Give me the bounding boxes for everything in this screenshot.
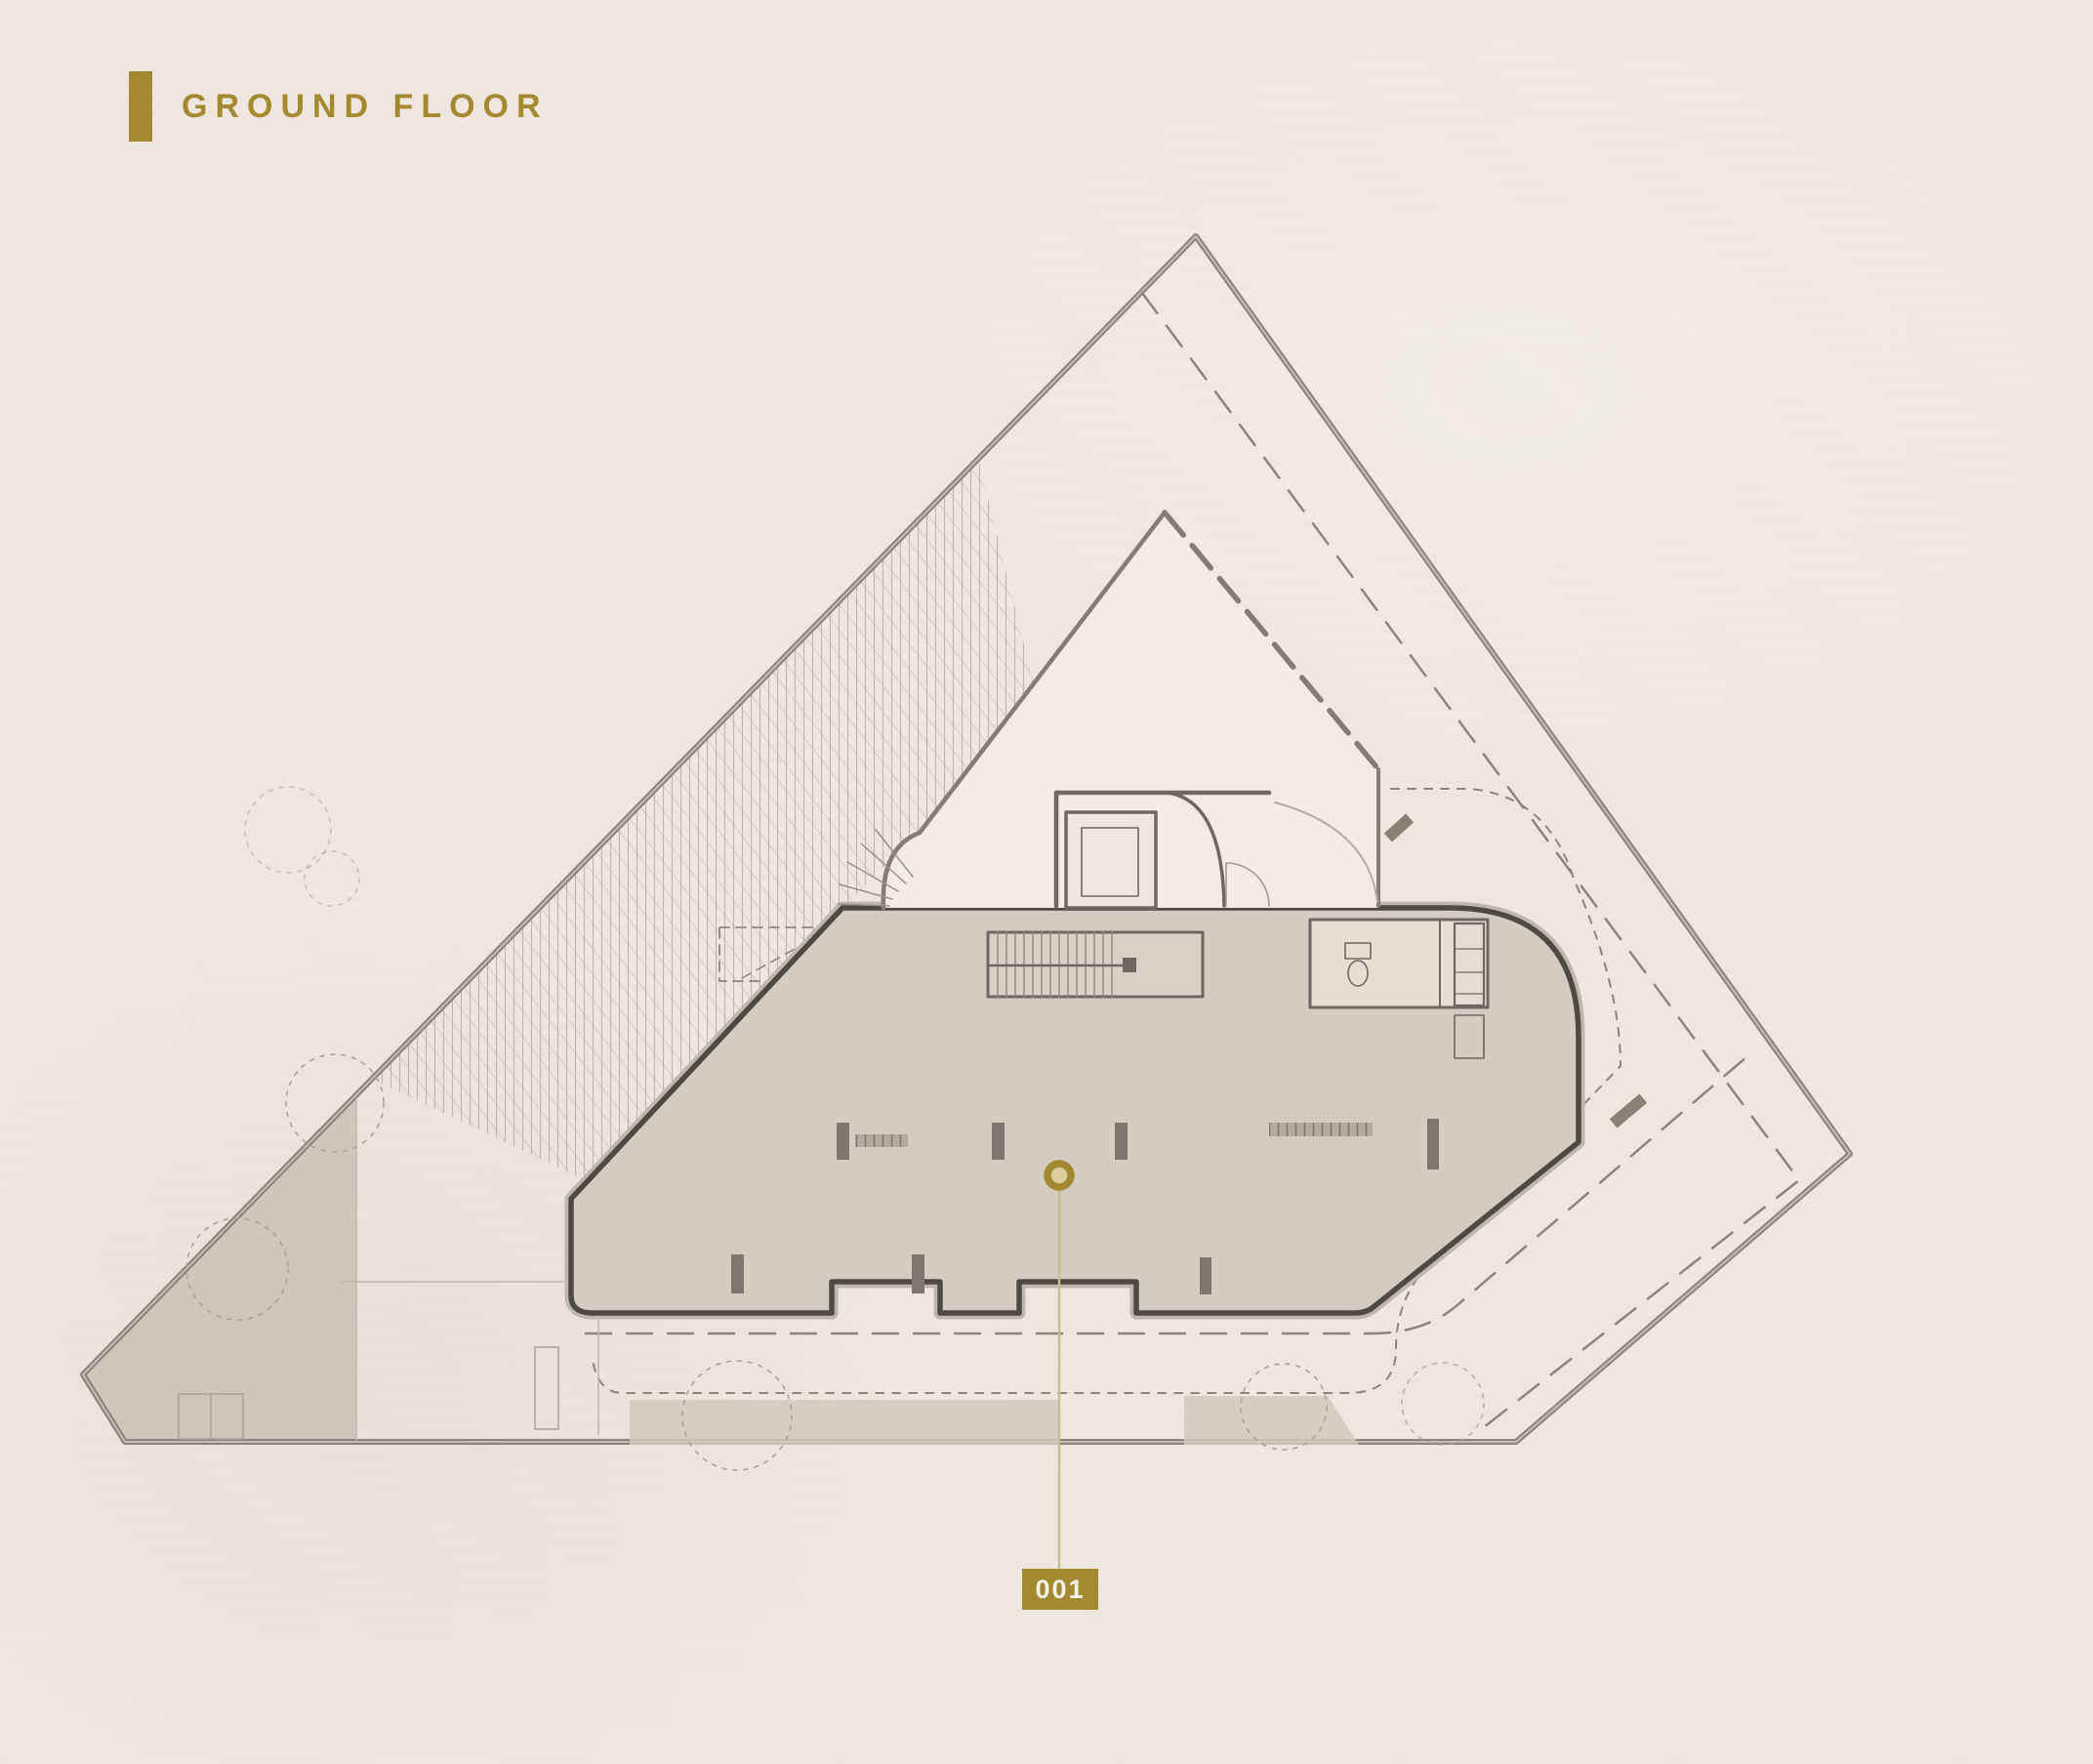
column	[912, 1254, 924, 1293]
column	[1427, 1119, 1439, 1169]
tree-canopy	[1402, 1363, 1484, 1445]
elevator	[1066, 812, 1156, 908]
column	[731, 1254, 744, 1293]
paving-strip	[630, 1400, 1059, 1445]
page: GROUND FLOOR	[0, 0, 2093, 1764]
tree-canopy	[305, 851, 359, 906]
column	[1200, 1257, 1211, 1294]
page-title: GROUND FLOOR	[182, 71, 549, 142]
title-accent-bar	[129, 71, 152, 142]
wall-stub-ticked	[1269, 1123, 1373, 1136]
pillar-stub	[1384, 814, 1414, 842]
column	[992, 1123, 1005, 1160]
garden-area	[83, 1069, 382, 1442]
floor-plan-drawing	[0, 0, 2093, 1764]
column	[837, 1123, 849, 1160]
column	[1115, 1123, 1128, 1160]
paving-strips	[630, 1396, 1359, 1445]
stair-well	[988, 932, 1203, 997]
pillar-stub	[1610, 1094, 1647, 1128]
stair-newel	[1123, 958, 1136, 972]
unit-badge[interactable]: 001	[1022, 1569, 1098, 1610]
tree-canopy	[245, 787, 331, 873]
unit-location-marker-icon[interactable]	[1047, 1164, 1071, 1187]
paving-strip	[1184, 1396, 1359, 1445]
wall-stub-ticked	[855, 1134, 908, 1147]
title-block: GROUND FLOOR	[129, 71, 549, 142]
